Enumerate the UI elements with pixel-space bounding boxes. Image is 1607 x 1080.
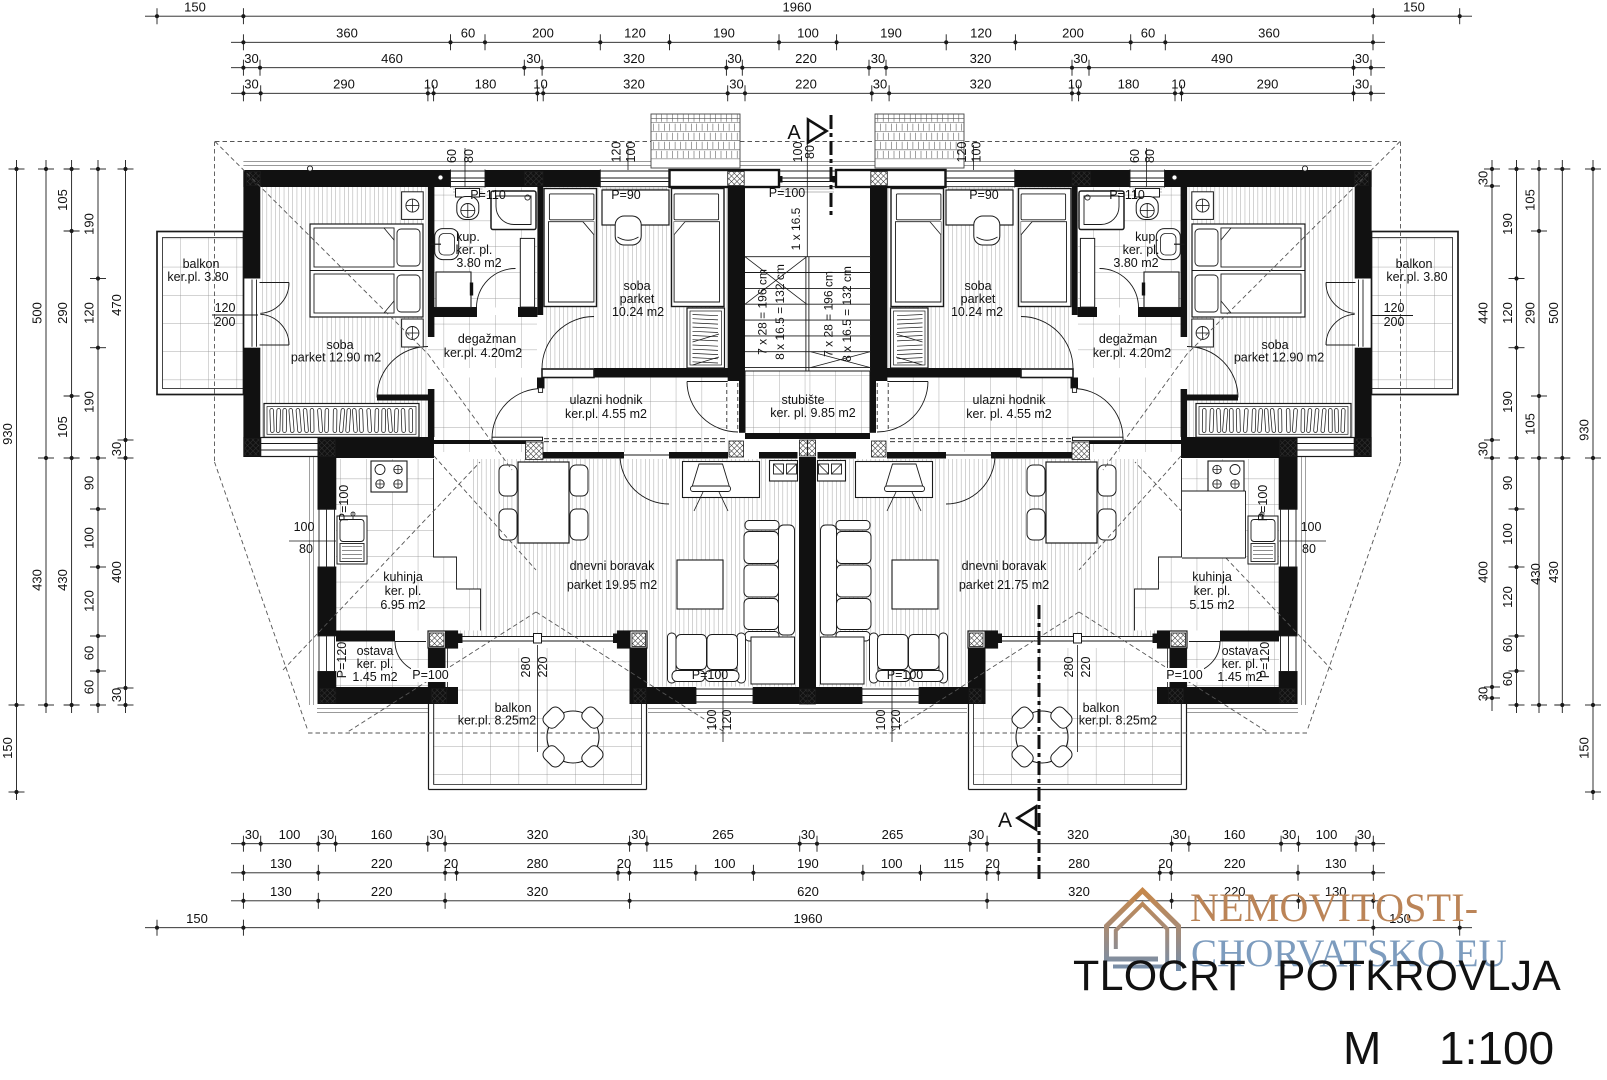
svg-text:A: A: [787, 122, 801, 144]
svg-text:400: 400: [1476, 561, 1491, 583]
svg-text:soba: soba: [964, 279, 991, 293]
svg-text:parket 19.95 m2: parket 19.95 m2: [567, 578, 657, 592]
svg-text:P=100: P=100: [412, 668, 449, 682]
svg-text:105: 105: [1523, 189, 1538, 211]
svg-text:930: 930: [0, 423, 15, 445]
svg-text:190: 190: [797, 856, 819, 871]
svg-text:80: 80: [299, 542, 313, 556]
svg-text:200: 200: [1062, 26, 1084, 41]
svg-text:120: 120: [889, 710, 903, 731]
svg-text:150: 150: [1403, 0, 1425, 15]
svg-text:130: 130: [1325, 856, 1347, 871]
svg-text:200: 200: [532, 26, 554, 41]
svg-text:8 x 16.5 = 132 cm: 8 x 16.5 = 132 cm: [840, 266, 854, 362]
svg-text:100: 100: [881, 856, 903, 871]
svg-text:115: 115: [943, 856, 964, 871]
svg-text:360: 360: [336, 26, 358, 41]
svg-text:P=90: P=90: [969, 188, 999, 202]
svg-text:190: 190: [1500, 213, 1515, 235]
svg-text:100: 100: [1316, 827, 1338, 842]
svg-text:60: 60: [82, 646, 97, 660]
svg-text:soba: soba: [623, 279, 650, 293]
svg-text:220: 220: [795, 51, 817, 66]
svg-text:30: 30: [631, 827, 645, 842]
svg-text:P=110: P=110: [1109, 188, 1145, 202]
svg-text:490: 490: [1211, 51, 1233, 66]
svg-text:160: 160: [1224, 827, 1246, 842]
svg-text:220: 220: [371, 884, 393, 899]
svg-text:30: 30: [1476, 171, 1491, 185]
svg-text:180: 180: [1118, 77, 1140, 92]
svg-text:P=120: P=120: [1258, 642, 1272, 679]
svg-text:460: 460: [381, 51, 403, 66]
svg-text:430: 430: [55, 569, 70, 591]
svg-text:ostava: ostava: [357, 644, 394, 658]
svg-text:P=100: P=100: [1256, 485, 1270, 522]
svg-text:360: 360: [1258, 26, 1280, 41]
svg-text:30: 30: [244, 51, 258, 66]
svg-text:265: 265: [712, 827, 734, 842]
svg-text:30: 30: [109, 442, 124, 456]
svg-text:parket 12.90 m2: parket 12.90 m2: [1234, 351, 1324, 365]
svg-text:1 x 16.5: 1 x 16.5: [789, 207, 803, 250]
svg-text:POTKROVLJA: POTKROVLJA: [1277, 953, 1561, 1000]
svg-text:P=100: P=100: [769, 186, 806, 200]
svg-text:90: 90: [1500, 476, 1515, 490]
svg-text:3.80 m2: 3.80 m2: [456, 256, 501, 270]
svg-text:30: 30: [727, 51, 741, 66]
svg-text:105: 105: [55, 416, 70, 438]
svg-text:60: 60: [1500, 638, 1515, 652]
svg-text:P=100: P=100: [692, 668, 729, 682]
svg-text:stubište: stubište: [781, 393, 824, 407]
svg-text:20: 20: [444, 856, 458, 871]
svg-text:100: 100: [714, 856, 736, 871]
svg-text:290: 290: [333, 77, 355, 92]
svg-text:P=110: P=110: [470, 188, 506, 202]
svg-text:100: 100: [705, 710, 719, 731]
svg-text:A: A: [998, 809, 1012, 832]
svg-text:8 x 16.5 = 132 cm: 8 x 16.5 = 132 cm: [773, 264, 787, 360]
svg-text:130: 130: [270, 884, 292, 899]
svg-text:100: 100: [1301, 520, 1322, 534]
svg-text:320: 320: [1068, 884, 1090, 899]
svg-text:kup.: kup.: [456, 230, 480, 244]
svg-text:280: 280: [1068, 856, 1090, 871]
svg-text:190: 190: [880, 26, 902, 41]
svg-text:220: 220: [371, 856, 393, 871]
svg-text:100: 100: [874, 710, 888, 731]
svg-text:120: 120: [1500, 302, 1515, 324]
svg-text:220: 220: [1079, 657, 1093, 678]
svg-text:ker. pl.: ker. pl.: [456, 243, 493, 257]
svg-text:120: 120: [1500, 586, 1515, 608]
svg-text:100: 100: [624, 142, 638, 163]
svg-text:M: M: [1343, 1022, 1381, 1074]
svg-text:320: 320: [970, 51, 992, 66]
svg-text:dnevni boravak: dnevni boravak: [570, 559, 656, 573]
svg-text:1.45 m2: 1.45 m2: [1217, 670, 1262, 684]
svg-text:90: 90: [82, 476, 97, 490]
svg-text:120: 120: [82, 302, 97, 324]
svg-text:440: 440: [1476, 302, 1491, 324]
svg-text:P=100: P=100: [337, 485, 351, 522]
svg-text:100: 100: [1500, 523, 1515, 545]
svg-text:500: 500: [30, 302, 45, 324]
svg-text:30: 30: [801, 827, 815, 842]
svg-text:10: 10: [1068, 77, 1082, 92]
svg-text:290: 290: [1257, 77, 1279, 92]
svg-text:10: 10: [424, 77, 438, 92]
svg-text:80: 80: [1302, 542, 1316, 556]
svg-text:105: 105: [1523, 413, 1538, 435]
svg-text:115: 115: [652, 856, 673, 871]
svg-text:320: 320: [527, 827, 549, 842]
svg-text:ker.pl. 3.80: ker.pl. 3.80: [167, 270, 228, 284]
svg-text:P=90: P=90: [611, 188, 641, 202]
svg-text:30: 30: [729, 77, 743, 92]
svg-text:P=120: P=120: [335, 642, 349, 679]
svg-text:3.80 m2: 3.80 m2: [1113, 256, 1158, 270]
svg-text:120: 120: [970, 26, 992, 41]
svg-text:265: 265: [882, 827, 904, 842]
svg-text:105: 105: [55, 189, 70, 211]
svg-text:1.45 m2: 1.45 m2: [352, 670, 397, 684]
svg-text:ker.pl. 3.80: ker.pl. 3.80: [1386, 270, 1447, 284]
svg-text:30: 30: [109, 688, 124, 702]
svg-text:30: 30: [244, 77, 258, 92]
svg-text:280: 280: [1062, 657, 1076, 678]
svg-text:30: 30: [1476, 442, 1491, 456]
svg-text:220: 220: [1224, 856, 1246, 871]
svg-text:120: 120: [1384, 301, 1405, 315]
svg-text:5.15 m2: 5.15 m2: [1189, 598, 1234, 612]
svg-text:60: 60: [1141, 26, 1155, 41]
svg-text:220: 220: [536, 657, 550, 678]
svg-text:320: 320: [623, 51, 645, 66]
svg-text:120: 120: [624, 26, 646, 41]
svg-text:10.24 m2: 10.24 m2: [951, 305, 1003, 319]
svg-text:30: 30: [970, 827, 984, 842]
svg-text:190: 190: [82, 213, 97, 235]
svg-text:ker.pl. 4.20m2: ker.pl. 4.20m2: [444, 346, 523, 360]
svg-text:30: 30: [873, 77, 887, 92]
svg-text:parket: parket: [620, 292, 655, 306]
svg-text:20: 20: [617, 856, 631, 871]
svg-text:30: 30: [1355, 77, 1369, 92]
svg-text:430: 430: [30, 569, 45, 591]
svg-text:ker. pl.: ker. pl.: [1123, 243, 1160, 257]
svg-text:30: 30: [871, 51, 885, 66]
svg-text:60: 60: [1500, 672, 1515, 686]
svg-text:280: 280: [527, 856, 549, 871]
svg-text:150: 150: [1577, 737, 1592, 759]
svg-text:30: 30: [245, 827, 259, 842]
svg-text:190: 190: [713, 26, 735, 41]
svg-text:150: 150: [0, 737, 15, 759]
svg-text:ker.pl. 8.25m2: ker.pl. 8.25m2: [1079, 714, 1158, 728]
svg-text:ker.pl. 4.20m2: ker.pl. 4.20m2: [1093, 346, 1172, 360]
svg-text:430: 430: [1546, 561, 1561, 583]
svg-text:500: 500: [1546, 302, 1561, 324]
svg-text:620: 620: [797, 884, 819, 899]
svg-text:degažman: degažman: [1099, 332, 1157, 346]
svg-text:120: 120: [215, 301, 236, 315]
svg-text:100: 100: [970, 142, 984, 163]
svg-text:parket: parket: [961, 292, 996, 306]
svg-text:balkon: balkon: [1396, 257, 1433, 271]
svg-text:10.24 m2: 10.24 m2: [612, 305, 664, 319]
svg-text:60: 60: [445, 149, 459, 163]
svg-text:80: 80: [1143, 149, 1157, 163]
svg-text:200: 200: [215, 315, 236, 329]
svg-text:400: 400: [109, 561, 124, 583]
svg-text:30: 30: [1357, 827, 1371, 842]
svg-text:ker.pl. 4.55 m2: ker.pl. 4.55 m2: [565, 407, 647, 421]
svg-text:TLOCRT: TLOCRT: [1073, 952, 1246, 1000]
svg-text:160: 160: [371, 827, 393, 842]
svg-text:290: 290: [55, 302, 70, 324]
svg-text:1960: 1960: [794, 911, 823, 926]
svg-text:150: 150: [186, 911, 208, 926]
svg-text:ker. pl.: ker. pl.: [385, 584, 422, 598]
svg-text:30: 30: [1355, 51, 1369, 66]
svg-text:7 x 28 = 196 cm: 7 x 28 = 196 cm: [822, 271, 836, 357]
svg-text:80: 80: [462, 149, 476, 163]
svg-text:930: 930: [1577, 419, 1592, 441]
svg-text:20: 20: [985, 856, 999, 871]
svg-text:6.95 m2: 6.95 m2: [380, 598, 425, 612]
svg-text:320: 320: [623, 77, 645, 92]
svg-text:30: 30: [429, 827, 443, 842]
svg-text:ulazni hodnik: ulazni hodnik: [973, 393, 1047, 407]
svg-text:200: 200: [1384, 315, 1405, 329]
svg-text:80: 80: [803, 145, 817, 159]
svg-text:150: 150: [184, 0, 206, 15]
svg-text:30: 30: [1172, 827, 1186, 842]
svg-text:kuhinja: kuhinja: [1192, 570, 1232, 584]
svg-text:10: 10: [1171, 77, 1185, 92]
svg-text:30: 30: [320, 827, 334, 842]
svg-text:130: 130: [270, 856, 292, 871]
svg-text:120: 120: [82, 590, 97, 612]
svg-text:ker. pl. 9.85 m2: ker. pl. 9.85 m2: [770, 406, 856, 420]
svg-text:10: 10: [533, 77, 547, 92]
svg-text:kuhinja: kuhinja: [383, 570, 423, 584]
svg-text:ker. pl.: ker. pl.: [1194, 584, 1231, 598]
svg-text:ker. pl.: ker. pl.: [357, 657, 394, 671]
svg-text:120: 120: [610, 142, 624, 163]
svg-text:ostava: ostava: [1222, 644, 1259, 658]
svg-text:degažman: degažman: [458, 332, 516, 346]
svg-text:100: 100: [279, 827, 301, 842]
svg-text:ker.pl. 8.25m2: ker.pl. 8.25m2: [458, 714, 537, 728]
svg-text:ulazni hodnik: ulazni hodnik: [570, 393, 644, 407]
svg-text:100: 100: [82, 527, 97, 549]
svg-text:320: 320: [527, 884, 549, 899]
svg-text:190: 190: [82, 391, 97, 413]
svg-text:ker. pl.: ker. pl.: [1222, 657, 1259, 671]
svg-text:60: 60: [82, 680, 97, 694]
svg-text:parket 21.75 m2: parket 21.75 m2: [959, 578, 1049, 592]
svg-text:P=100: P=100: [1166, 668, 1203, 682]
svg-text:dnevni boravak: dnevni boravak: [962, 559, 1048, 573]
svg-text:7 x 28 = 196 cm: 7 x 28 = 196 cm: [756, 269, 770, 355]
svg-text:470: 470: [109, 294, 124, 316]
svg-text:30: 30: [1476, 687, 1491, 701]
svg-text:NEMOVITOSTI-: NEMOVITOSTI-: [1190, 885, 1478, 930]
svg-text:1:100: 1:100: [1439, 1022, 1554, 1074]
svg-text:320: 320: [970, 77, 992, 92]
svg-text:320: 320: [1067, 827, 1089, 842]
svg-text:P=100: P=100: [887, 668, 924, 682]
svg-text:100: 100: [294, 520, 315, 534]
svg-text:290: 290: [1523, 302, 1538, 324]
svg-text:30: 30: [526, 51, 540, 66]
svg-text:430: 430: [1528, 563, 1543, 585]
svg-text:60: 60: [1128, 149, 1142, 163]
svg-text:30: 30: [1073, 51, 1087, 66]
svg-text:balkon: balkon: [183, 257, 220, 271]
svg-text:190: 190: [1500, 391, 1515, 413]
svg-text:1960: 1960: [783, 0, 812, 15]
svg-text:60: 60: [461, 26, 475, 41]
svg-text:280: 280: [519, 657, 533, 678]
svg-text:30: 30: [1282, 827, 1296, 842]
svg-text:ker. pl. 4.55 m2: ker. pl. 4.55 m2: [966, 407, 1052, 421]
svg-text:220: 220: [795, 77, 817, 92]
svg-text:180: 180: [475, 77, 497, 92]
svg-text:20: 20: [1158, 856, 1172, 871]
svg-text:100: 100: [797, 26, 819, 41]
svg-text:120: 120: [955, 142, 969, 163]
svg-text:parket 12.90 m2: parket 12.90 m2: [291, 351, 381, 365]
svg-text:120: 120: [720, 710, 734, 731]
svg-text:kup.: kup.: [1135, 230, 1159, 244]
